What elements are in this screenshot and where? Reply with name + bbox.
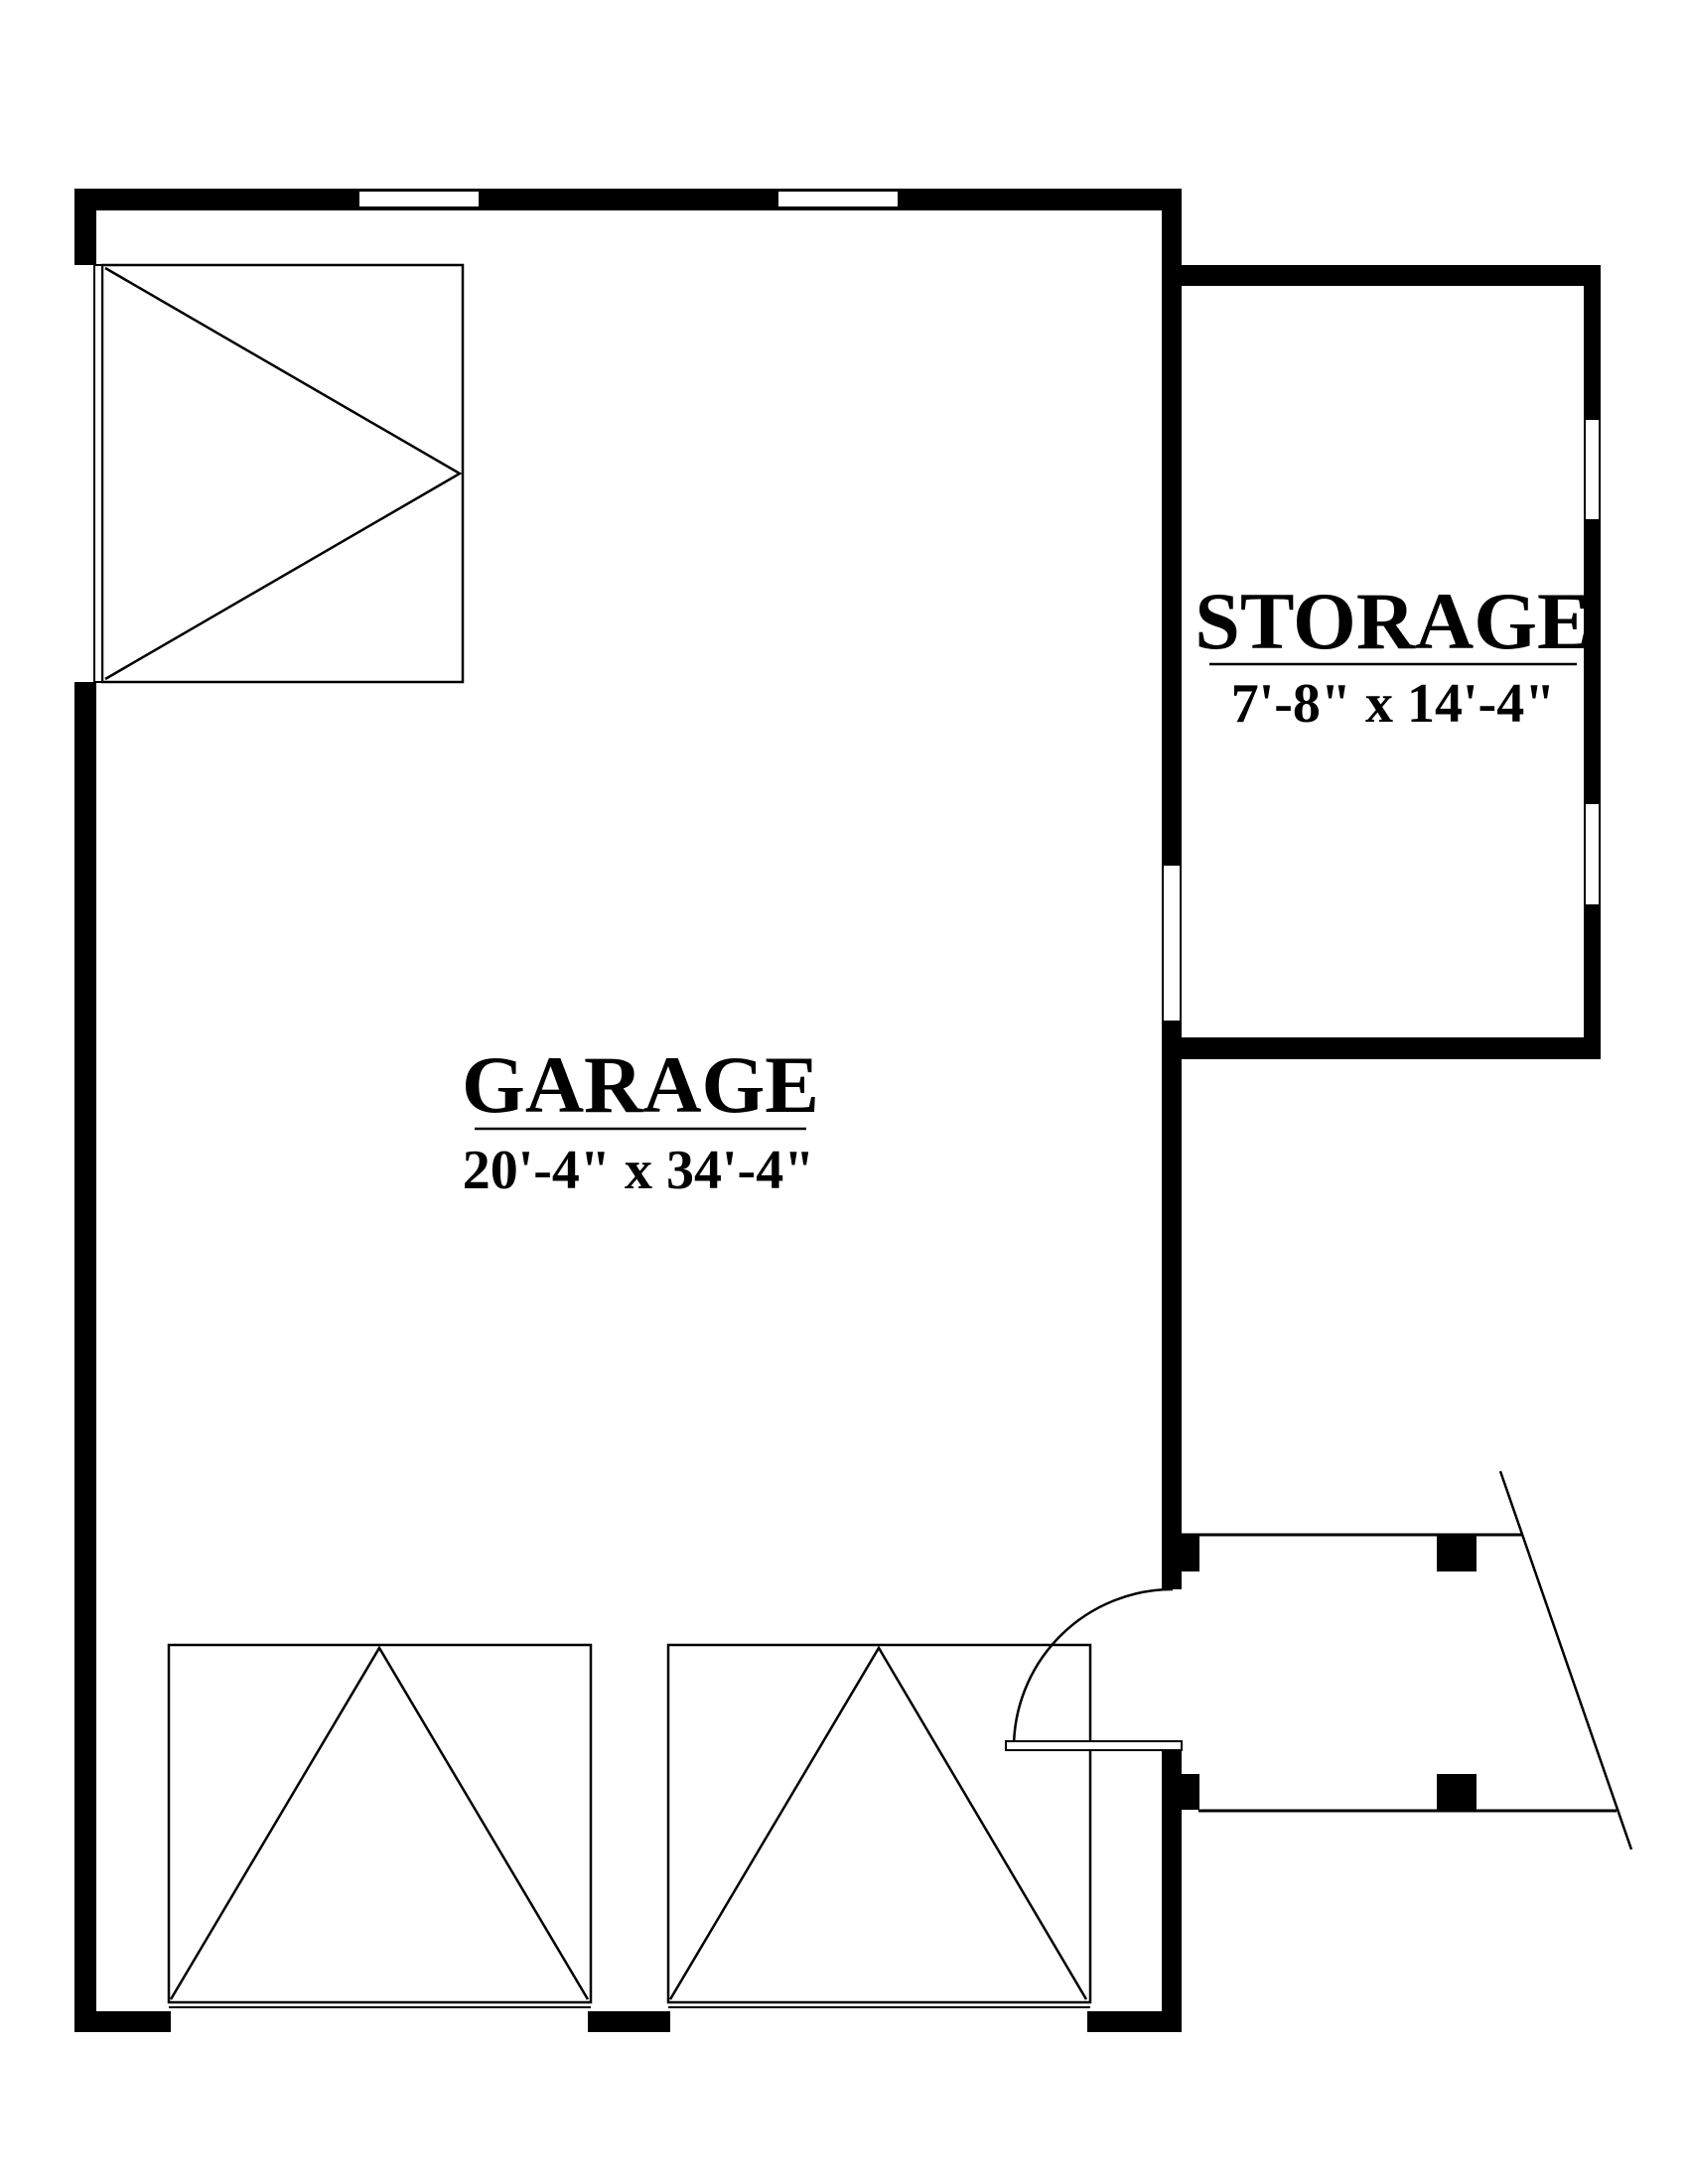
driveway-edge-line: [1500, 1471, 1631, 1849]
porch: [1177, 1471, 1631, 1849]
side-garage-door-swing-triangle: [105, 268, 460, 679]
porch-pier-wall-bottom: [1177, 1774, 1199, 1810]
garage-bay-door-2-outline: [668, 1645, 1090, 2002]
side-garage-door-panel: [94, 265, 102, 682]
garage-bay-door-2-swing-triangle: [670, 1648, 1086, 1999]
storage-room-dimensions: 7'-8" x 14'-4": [1231, 673, 1556, 735]
garage-top-wall: [74, 189, 1182, 210]
storage-room: STORAGE 7'-8" x 14'-4": [1163, 265, 1601, 1059]
entry-door-opening: [1162, 1589, 1182, 1749]
garage-right-wall: [1162, 189, 1182, 2032]
garage-bay-door-1-outline: [169, 1645, 591, 2002]
side-garage-door-opening: [74, 265, 96, 682]
storage-window-2: [1586, 804, 1599, 904]
garage-room-dimensions: 20'-4" x 34'-4": [463, 1140, 815, 1201]
entry-door-swing-arc: [1014, 1589, 1173, 1748]
entry-door-leaf: [1006, 1741, 1182, 1750]
storage-window-1: [1586, 420, 1599, 519]
storage-door-frame: [1163, 865, 1181, 1022]
garage-window-top-1: [359, 192, 479, 206]
storage-top-wall: [1182, 265, 1601, 286]
porch-pier-wall-top: [1182, 1536, 1199, 1571]
storage-bottom-wall: [1182, 1037, 1601, 1059]
side-garage-door-outline: [102, 265, 463, 682]
porch-pier-outer-bottom: [1437, 1774, 1477, 1810]
garage-window-top-2: [778, 192, 898, 206]
garage-bay-door-1-swing-triangle: [171, 1648, 588, 1999]
entry-door: [1006, 1589, 1182, 1750]
storage-room-label: STORAGE: [1195, 576, 1592, 666]
garage-bay-opening-2: [670, 2011, 1087, 2032]
porch-pier-outer-top: [1437, 1536, 1477, 1571]
floor-plan-drawing: GARAGE 20'-4" x 34'-4" STORAGE 7'-8" x 1…: [0, 0, 1688, 2184]
garage-room: GARAGE 20'-4" x 34'-4": [74, 189, 1182, 2032]
garage-bay-opening-1: [171, 2011, 588, 2032]
garage-room-label: GARAGE: [462, 1039, 819, 1130]
